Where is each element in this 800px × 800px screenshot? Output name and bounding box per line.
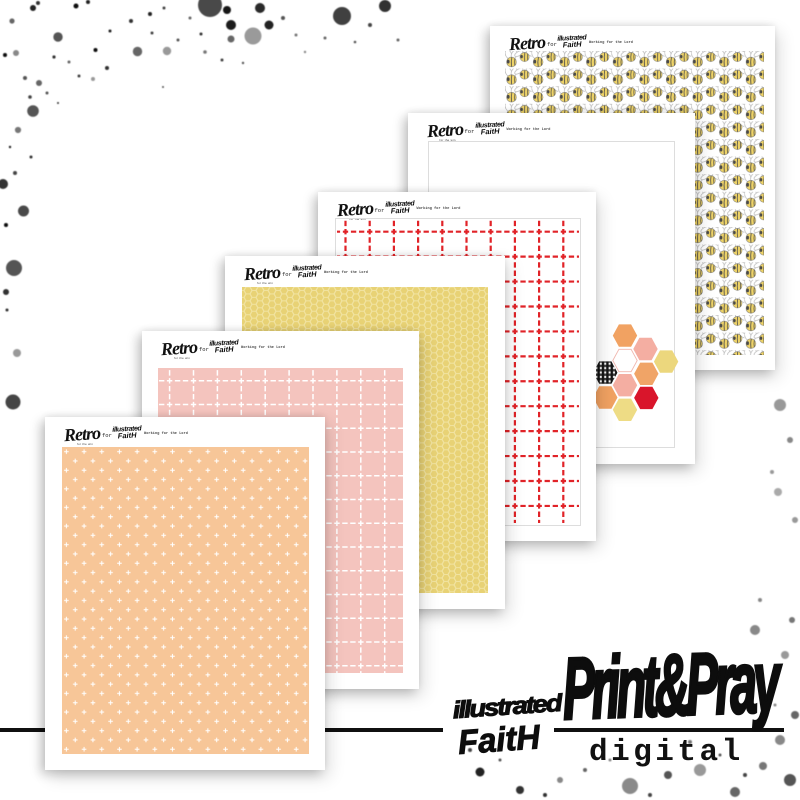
svg-text:Print&Pray: Print&Pray	[561, 636, 784, 738]
svg-text:illustrated: illustrated	[452, 690, 565, 724]
svg-text:FaitH: FaitH	[457, 718, 543, 762]
